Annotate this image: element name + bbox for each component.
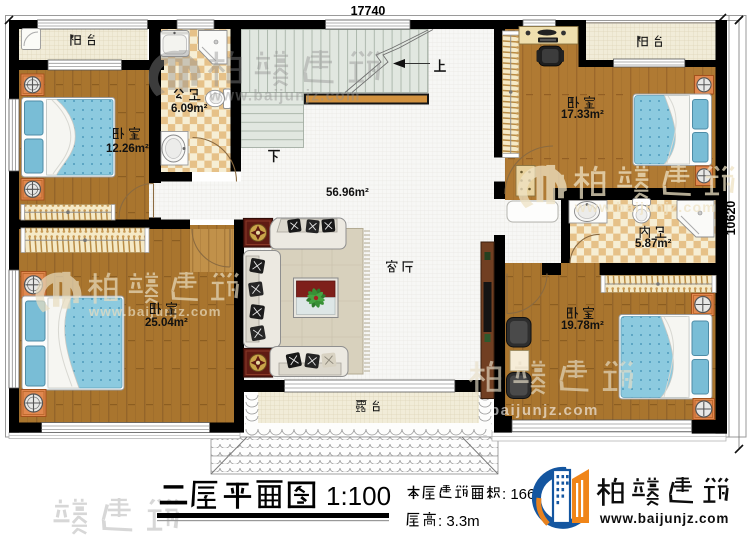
svg-text:5.87m²: 5.87m² (635, 238, 672, 250)
svg-text:www.baijunjz.com: www.baijunjz.com (599, 511, 729, 526)
svg-text:56.96m²: 56.96m² (326, 187, 369, 199)
svg-text:6.09m²: 6.09m² (171, 103, 208, 115)
svg-text:17740: 17740 (351, 4, 386, 18)
svg-text:19.78m²: 19.78m² (561, 320, 604, 332)
svg-text:: 3.3m: : 3.3m (438, 513, 480, 530)
svg-text:12.26m²: 12.26m² (106, 143, 149, 155)
svg-text:17.33m²: 17.33m² (561, 109, 604, 121)
svg-text:1:100: 1:100 (326, 481, 391, 511)
svg-text:baijunjz.com: baijunjz.com (490, 402, 599, 419)
svg-text:25.04m²: 25.04m² (145, 317, 188, 329)
